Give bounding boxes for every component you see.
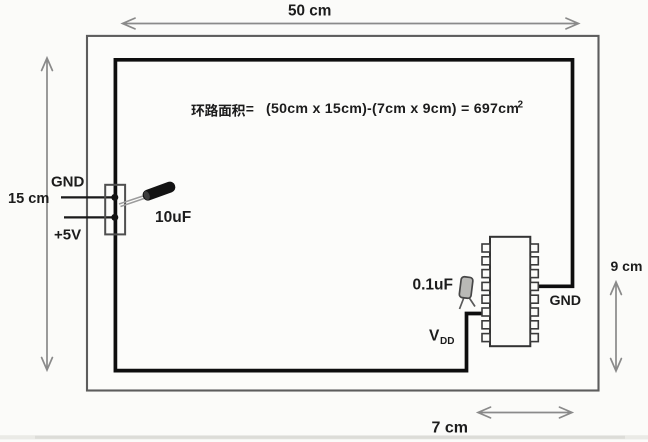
svg-text:+5V: +5V <box>54 227 81 244</box>
svg-text:DD: DD <box>440 336 454 347</box>
svg-text:V: V <box>429 328 440 345</box>
svg-text:7 cm: 7 cm <box>432 420 468 437</box>
svg-text:15 cm: 15 cm <box>8 191 49 207</box>
svg-text:50 cm: 50 cm <box>288 3 331 20</box>
svg-text:9 cm: 9 cm <box>611 258 643 274</box>
svg-text:2: 2 <box>518 100 524 111</box>
svg-text:0.1uF: 0.1uF <box>413 277 453 294</box>
svg-text:GND: GND <box>550 293 582 309</box>
svg-text:(50cm x 15cm)-(7cm x 9cm) = 69: (50cm x 15cm)-(7cm x 9cm) = 697cm <box>266 101 519 117</box>
svg-text:10uF: 10uF <box>155 209 191 226</box>
svg-text:=: = <box>246 101 254 117</box>
svg-text:GND: GND <box>51 174 85 191</box>
